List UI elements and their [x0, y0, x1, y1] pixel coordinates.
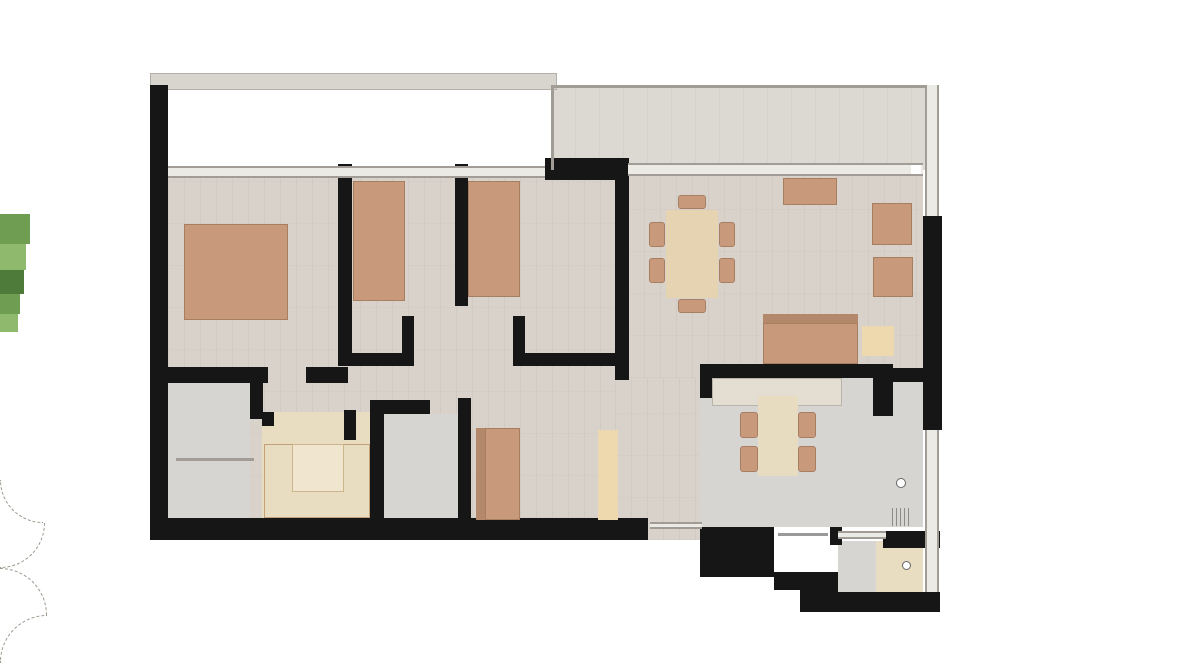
master-pillow-2 [188, 273, 208, 313]
door-arc-bedroom3 [0, 615, 47, 662]
door-arc-bath1 [0, 480, 43, 523]
plant-leaf-1 [0, 244, 26, 270]
room-hallway-floor [615, 378, 700, 540]
wall-loggia-bottom [800, 592, 940, 612]
bath1-toilet-tank [0, 359, 11, 381]
living-armchair-1 [872, 203, 912, 245]
kitchen-tall-cabinet [692, 382, 706, 458]
sala-tv-console [598, 430, 618, 520]
bath2-toilet-tank [0, 434, 11, 454]
dining-chair-4 [719, 258, 735, 283]
terrace-left-edge [551, 85, 554, 170]
master-dresser [322, 238, 338, 310]
wall-closet-stub-right [344, 410, 356, 440]
bedroom3-pillow [472, 184, 516, 202]
plant-leaf-3 [0, 294, 20, 314]
bedroom2-nightstand [409, 183, 439, 216]
wall-closet-nook2-right [402, 316, 414, 366]
washing-machine-detail [778, 533, 828, 536]
bedroom3-nightstand [524, 182, 551, 208]
window-living-terrace [628, 163, 923, 176]
facade-white-strip [168, 90, 545, 168]
wall-right-exterior [923, 216, 942, 430]
loggia-sink-drain [902, 561, 911, 570]
window-right-top [925, 85, 939, 216]
bath1-toilet-bowl [0, 381, 29, 408]
wall-master-bedroom2 [338, 164, 352, 324]
bath1-vanity [170, 384, 204, 424]
wall-bottom-block [700, 527, 774, 577]
wall-left-exterior [150, 85, 168, 540]
kitchen-chair-2 [740, 446, 758, 472]
wall-bottom-exterior [150, 518, 648, 540]
cooktop [841, 379, 873, 406]
bedroom2-closet-shelf [352, 320, 402, 353]
dining-chair-6 [678, 299, 706, 313]
living-sofa-back [763, 314, 858, 324]
plant-icon [0, 214, 30, 244]
shower-mampara [176, 462, 254, 516]
person-on-sofa [0, 167, 34, 216]
wall-closet-nook3-bottom [513, 353, 617, 366]
kitchen-chair-1 [740, 412, 758, 438]
walkin-closet-aisle [292, 444, 344, 492]
kitchen-dish-rack [892, 508, 912, 526]
door-arc-closet [0, 523, 45, 568]
wall-bath2-sala [458, 398, 471, 538]
wall-kitchen-top [700, 364, 874, 378]
kitchen-table [758, 396, 798, 476]
floor-plan: ← → Separación sector público/privado Es… [0, 0, 1200, 663]
living-armchair-2 [873, 257, 913, 297]
terrace-top-edge [551, 85, 925, 88]
bath2-vanity [386, 412, 418, 450]
plant-leaf-2 [0, 270, 24, 294]
master-bed-headboard [172, 226, 184, 318]
master-pillow-1 [188, 229, 208, 269]
entry-door-leaf [650, 522, 702, 529]
living-sideboard [783, 178, 837, 205]
dining-chair-3 [719, 222, 735, 247]
bath1-sink-bowl [0, 332, 21, 359]
living-rug [780, 234, 837, 282]
bath2-sink-bowl [0, 408, 19, 434]
dining-chair-1 [649, 222, 665, 247]
kitchen-sink-drain [896, 478, 906, 488]
door-arc-bedroom2 [0, 568, 47, 615]
kitchen-chair-3 [798, 412, 816, 438]
loggia-glass-door [838, 531, 886, 539]
mampara-glass [176, 458, 254, 461]
kitchen-chair-4 [798, 446, 816, 472]
sala-sofa-back [476, 428, 486, 520]
wall-bedroom2-bedroom3 [455, 164, 468, 306]
plant-leaf-4 [0, 314, 18, 332]
dining-chair-5 [678, 195, 706, 209]
bedroom2-pillow [357, 184, 401, 202]
master-nightstand-top [170, 188, 200, 222]
wall-master-divider-left [150, 367, 268, 383]
dining-chair-2 [649, 258, 665, 283]
wall-closet-stub-left [262, 412, 274, 426]
master-bed-sheet-fold [0, 0, 60, 36]
living-side-table [862, 326, 894, 356]
wall-bedroom3-living [615, 158, 629, 380]
master-nightstand-bottom [170, 322, 200, 356]
wall-master-divider-right [306, 367, 348, 383]
dining-table [666, 210, 718, 298]
window-bedrooms-band [168, 166, 545, 178]
facade-top-band [150, 73, 557, 90]
person-on-bed [0, 34, 40, 100]
bedroom3-closet-shelf [525, 320, 613, 353]
bath2-bathtub [386, 490, 458, 518]
bath2-toilet-bowl [0, 454, 28, 480]
terrace-door-gap [911, 165, 921, 174]
window-right-bottom [925, 430, 939, 592]
